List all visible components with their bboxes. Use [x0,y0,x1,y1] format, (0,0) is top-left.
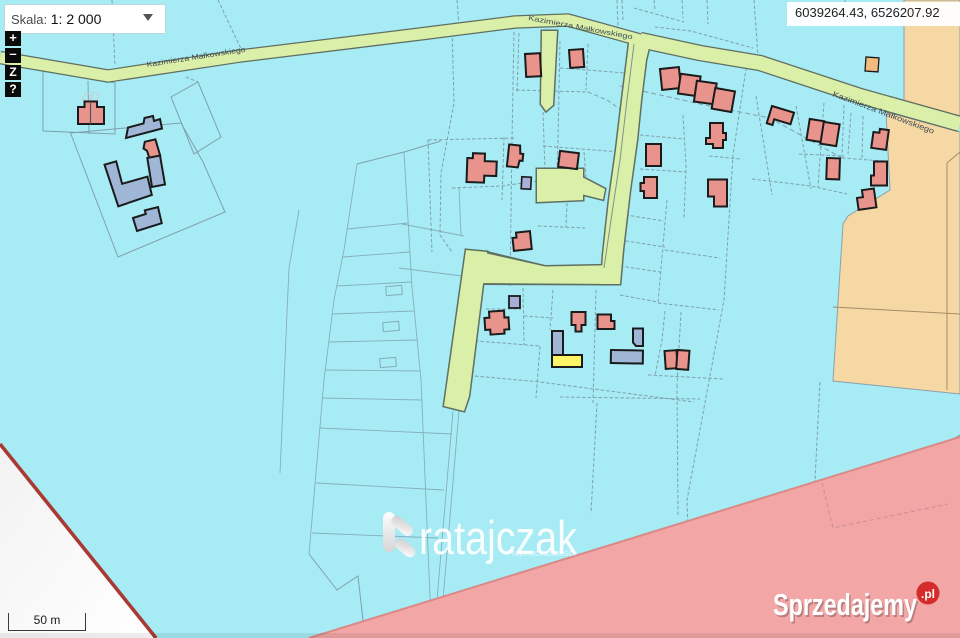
svg-text:NIERUCHOMOŚCI: NIERUCHOMOŚCI [512,549,576,558]
svg-text:.pl: .pl [921,587,935,601]
svg-text:Sprzedajemy: Sprzedajemy [773,587,918,622]
